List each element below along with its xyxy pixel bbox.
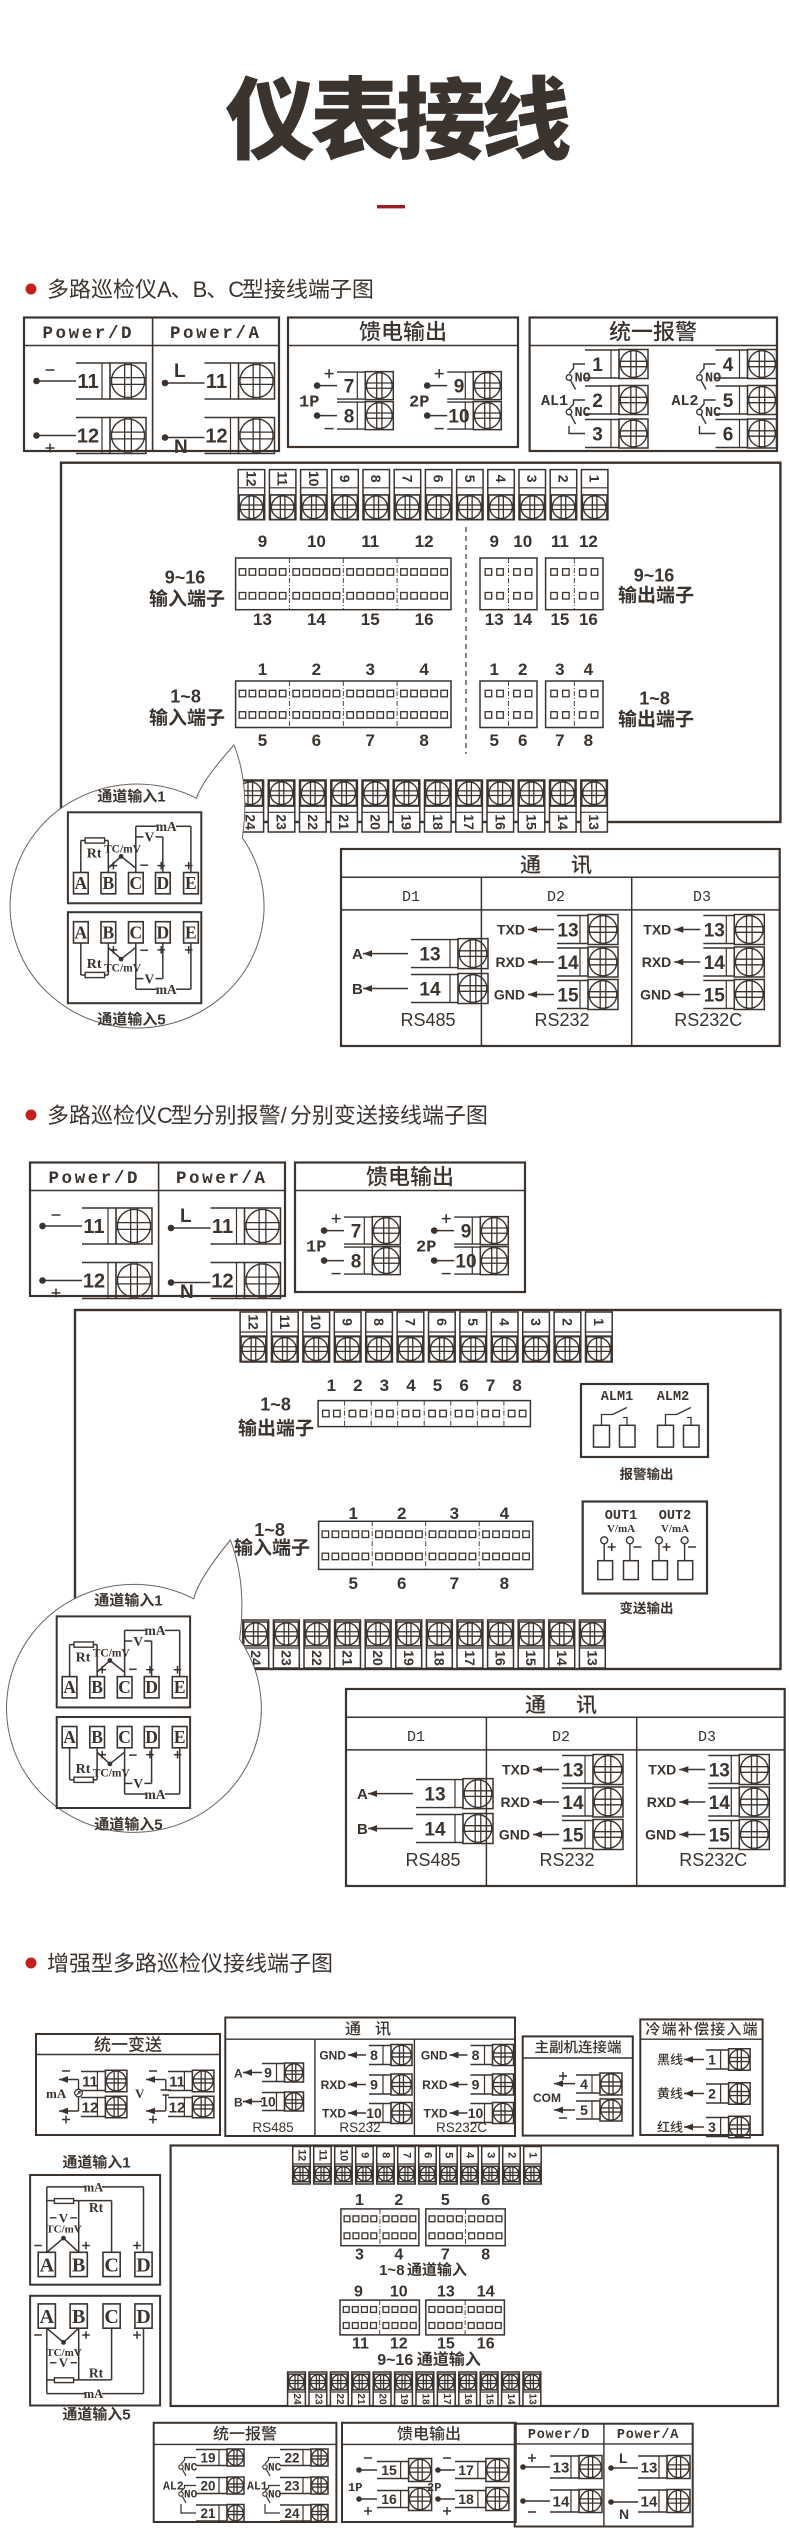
svg-text:12: 12 <box>390 2336 408 2353</box>
svg-text:15: 15 <box>704 985 726 1006</box>
svg-text:14: 14 <box>424 1819 446 1840</box>
svg-text:19: 19 <box>401 1650 417 1666</box>
svg-text:17: 17 <box>461 814 477 830</box>
svg-text:6: 6 <box>421 2152 433 2158</box>
svg-text:D: D <box>145 1727 158 1747</box>
svg-text:8: 8 <box>370 2047 378 2063</box>
svg-text:D1: D1 <box>407 1729 425 1746</box>
svg-text:15: 15 <box>709 1825 731 1846</box>
svg-text:RS232: RS232 <box>534 1010 589 1030</box>
svg-text:9: 9 <box>472 2077 480 2093</box>
svg-text:13: 13 <box>253 610 272 629</box>
svg-text:6: 6 <box>431 475 447 483</box>
svg-text:14: 14 <box>554 1650 570 1666</box>
svg-text:B: B <box>102 873 114 893</box>
svg-text:16: 16 <box>477 2336 495 2353</box>
svg-text:16: 16 <box>579 610 598 629</box>
svg-text:14: 14 <box>562 1793 584 1814</box>
svg-text:5: 5 <box>122 2406 130 2423</box>
svg-text:GND: GND <box>645 1827 676 1843</box>
svg-text:Rt: Rt <box>76 1762 91 1777</box>
svg-text:4: 4 <box>493 475 509 483</box>
svg-text:14: 14 <box>505 2393 516 2405</box>
svg-text:1: 1 <box>592 355 603 376</box>
svg-text:V: V <box>133 1634 143 1649</box>
svg-text:1~8: 1~8 <box>170 687 201 707</box>
svg-text:11: 11 <box>77 371 98 393</box>
svg-text:RXD: RXD <box>422 2078 448 2092</box>
svg-text:D3: D3 <box>693 889 711 906</box>
svg-text:GND: GND <box>494 987 525 1003</box>
svg-text:D: D <box>136 2306 150 2328</box>
svg-text:RS485: RS485 <box>252 2120 293 2135</box>
svg-text:E: E <box>174 1677 186 1697</box>
svg-text:10: 10 <box>366 2105 382 2121</box>
svg-text:1: 1 <box>122 2154 130 2171</box>
svg-text:22: 22 <box>305 814 321 830</box>
svg-text:10: 10 <box>390 2284 408 2301</box>
svg-text:15: 15 <box>562 1825 584 1846</box>
svg-text:12: 12 <box>83 1271 105 1293</box>
svg-text:1~8: 1~8 <box>379 2262 404 2279</box>
svg-text:RXD: RXD <box>321 2078 347 2092</box>
svg-text:10: 10 <box>468 2105 484 2121</box>
svg-text:3: 3 <box>365 660 374 679</box>
svg-text:8: 8 <box>481 2247 490 2264</box>
svg-text:TXD: TXD <box>648 1762 676 1778</box>
svg-text:13: 13 <box>709 1760 730 1781</box>
svg-text:A: A <box>234 2067 243 2081</box>
svg-text:1~8: 1~8 <box>260 1395 291 1415</box>
svg-text:mA: mA <box>84 2180 103 2194</box>
svg-text:ALM1: ALM1 <box>601 1390 633 1405</box>
svg-text:6: 6 <box>434 1318 450 1326</box>
svg-text:TC/mV: TC/mV <box>104 963 142 975</box>
svg-text:2: 2 <box>518 660 527 679</box>
svg-text:16: 16 <box>492 814 508 830</box>
svg-text:Power/A: Power/A <box>170 324 262 344</box>
svg-text:9: 9 <box>358 2152 370 2158</box>
svg-text:16: 16 <box>462 2393 473 2405</box>
svg-text:L: L <box>180 1206 192 1227</box>
svg-text:12: 12 <box>245 1314 261 1330</box>
svg-text:24: 24 <box>284 2506 300 2521</box>
svg-text:E: E <box>185 873 197 893</box>
svg-text:RXD: RXD <box>495 954 525 970</box>
svg-text:Power/A: Power/A <box>176 1169 268 1189</box>
svg-text:13: 13 <box>437 2284 455 2301</box>
svg-text:6: 6 <box>518 731 527 750</box>
svg-text:D2: D2 <box>552 1729 570 1746</box>
svg-text:23: 23 <box>312 2393 323 2405</box>
svg-text:A: A <box>357 1786 368 1803</box>
svg-text:Rt: Rt <box>76 1650 91 1665</box>
svg-text:B: B <box>357 1821 368 1838</box>
svg-text:RS232C: RS232C <box>679 1850 747 1870</box>
svg-text:1: 1 <box>154 1592 162 1609</box>
svg-text:N: N <box>619 2506 629 2522</box>
svg-text:9: 9 <box>354 2284 363 2301</box>
svg-text:V/mA: V/mA <box>661 1523 689 1535</box>
svg-text:E: E <box>185 922 197 942</box>
svg-text:3: 3 <box>555 660 564 679</box>
svg-text:13: 13 <box>485 610 504 629</box>
svg-text:4: 4 <box>580 2076 588 2092</box>
svg-text:9: 9 <box>264 2065 272 2081</box>
svg-text:5: 5 <box>258 731 267 750</box>
svg-text:6: 6 <box>312 731 321 750</box>
svg-text:TXD: TXD <box>502 1762 530 1778</box>
svg-text:V/mA: V/mA <box>607 1523 635 1535</box>
svg-text:20: 20 <box>377 2393 388 2405</box>
svg-text:4: 4 <box>584 660 594 679</box>
svg-text:C: C <box>228 277 244 302</box>
svg-text:11: 11 <box>352 2336 369 2353</box>
svg-text:5: 5 <box>157 1011 165 1028</box>
svg-text:1: 1 <box>348 1504 357 1523</box>
svg-text:5: 5 <box>442 2152 454 2158</box>
svg-text:12: 12 <box>169 2099 186 2116</box>
svg-text:11: 11 <box>277 1315 293 1330</box>
svg-text:15: 15 <box>550 610 569 629</box>
svg-text:2: 2 <box>505 2152 517 2158</box>
svg-text:15: 15 <box>437 2336 455 2353</box>
svg-text:13: 13 <box>704 920 725 941</box>
svg-text:A: A <box>157 277 172 302</box>
svg-text:8: 8 <box>500 1574 509 1593</box>
svg-text:5: 5 <box>723 391 734 412</box>
svg-text:6: 6 <box>397 1574 406 1593</box>
svg-text:3: 3 <box>592 424 603 445</box>
svg-text:OUT2: OUT2 <box>659 1509 691 1524</box>
svg-text:2P: 2P <box>427 2481 441 2495</box>
svg-text:NC: NC <box>268 2463 282 2475</box>
svg-text:C: C <box>104 2254 118 2276</box>
svg-text:23: 23 <box>274 814 290 830</box>
svg-text:8: 8 <box>379 2152 391 2158</box>
svg-text:2: 2 <box>397 1504 406 1523</box>
svg-text:V: V <box>135 2086 145 2101</box>
svg-text:RS232: RS232 <box>339 2120 380 2135</box>
svg-text:7: 7 <box>365 731 374 750</box>
svg-text:5: 5 <box>462 475 478 483</box>
svg-text:ALM2: ALM2 <box>657 1390 689 1405</box>
svg-text:7: 7 <box>344 376 355 397</box>
svg-text:RS232C: RS232C <box>674 1010 742 1030</box>
svg-text:A: A <box>63 1677 76 1697</box>
svg-text:13: 13 <box>557 920 578 941</box>
svg-text:1: 1 <box>587 475 603 483</box>
svg-text:NO: NO <box>268 2490 282 2502</box>
svg-text:2: 2 <box>353 1376 362 1395</box>
svg-text:17: 17 <box>458 2462 474 2478</box>
svg-text:11: 11 <box>83 1216 104 1238</box>
svg-text:21: 21 <box>355 2393 366 2405</box>
svg-text:11: 11 <box>275 471 291 486</box>
svg-text:11: 11 <box>361 532 379 551</box>
svg-text:12: 12 <box>579 532 598 551</box>
svg-text:14: 14 <box>555 814 571 830</box>
svg-text:RXD: RXD <box>500 1794 530 1810</box>
svg-text:TC/mV: TC/mV <box>93 1767 131 1779</box>
svg-text:D: D <box>136 2254 150 2276</box>
svg-text:TC/mV: TC/mV <box>93 1648 131 1660</box>
svg-text:9: 9 <box>258 532 267 551</box>
svg-text:mA: mA <box>156 819 177 834</box>
svg-text:20: 20 <box>370 1650 386 1666</box>
svg-text:14: 14 <box>641 2493 658 2510</box>
svg-text:5: 5 <box>348 1574 357 1593</box>
svg-text:23: 23 <box>278 1650 294 1666</box>
svg-text:7: 7 <box>555 731 564 750</box>
svg-text:C: C <box>129 922 142 942</box>
svg-text:GND: GND <box>319 2049 346 2063</box>
svg-text:10: 10 <box>455 1251 476 1272</box>
svg-text:B: B <box>91 1677 103 1697</box>
svg-text:mA: mA <box>145 1787 166 1802</box>
svg-text:22: 22 <box>284 2450 299 2465</box>
svg-text:mA: mA <box>156 982 177 997</box>
svg-text:1: 1 <box>489 660 498 679</box>
svg-text:D: D <box>156 873 169 893</box>
svg-text:OUT1: OUT1 <box>605 1509 637 1524</box>
svg-text:mA: mA <box>84 2387 103 2401</box>
svg-text:1: 1 <box>355 2192 364 2209</box>
svg-text:mA: mA <box>46 2086 67 2101</box>
svg-text:10: 10 <box>337 2149 349 2161</box>
svg-text:1: 1 <box>708 2052 716 2068</box>
svg-text:3: 3 <box>524 475 540 483</box>
svg-text:1: 1 <box>327 1376 336 1395</box>
svg-text:16: 16 <box>381 2491 397 2507</box>
svg-text:9: 9 <box>370 2077 378 2093</box>
svg-text:C: C <box>104 2306 118 2328</box>
svg-text:4: 4 <box>500 1504 510 1523</box>
svg-text:9: 9 <box>454 376 465 397</box>
svg-text:8: 8 <box>344 406 355 427</box>
svg-text:4: 4 <box>497 1318 513 1326</box>
svg-text:10: 10 <box>448 406 469 427</box>
svg-text:2: 2 <box>560 1318 576 1326</box>
svg-text:19: 19 <box>398 2393 409 2405</box>
svg-text:NO: NO <box>705 372 721 387</box>
svg-text:B: B <box>102 922 114 942</box>
svg-text:GND: GND <box>421 2049 448 2063</box>
svg-text:7: 7 <box>403 1318 419 1326</box>
svg-text:Power/D: Power/D <box>528 2428 590 2443</box>
svg-text:1: 1 <box>591 1318 607 1326</box>
svg-text:GND: GND <box>640 987 671 1003</box>
svg-text:1P: 1P <box>348 2481 362 2495</box>
svg-text:Power/D: Power/D <box>48 1169 140 1189</box>
svg-text:RS232: RS232 <box>539 1850 594 1870</box>
svg-text:20: 20 <box>200 2478 215 2493</box>
svg-text:17: 17 <box>441 2393 452 2405</box>
svg-text:A: A <box>63 1727 76 1747</box>
svg-text:GND: GND <box>499 1827 530 1843</box>
svg-text:21: 21 <box>336 814 352 830</box>
svg-text:AL1: AL1 <box>541 393 568 410</box>
svg-text:2: 2 <box>708 2086 716 2102</box>
svg-text:B: B <box>193 277 208 302</box>
svg-text:RS232C: RS232C <box>436 2120 487 2135</box>
svg-text:4: 4 <box>463 2152 475 2159</box>
svg-text:13: 13 <box>586 814 602 830</box>
svg-text:15: 15 <box>381 2462 397 2478</box>
svg-text:7: 7 <box>400 2152 412 2158</box>
svg-text:9: 9 <box>489 532 498 551</box>
svg-text:1: 1 <box>157 788 165 805</box>
svg-text:13: 13 <box>584 1650 600 1666</box>
svg-text:8: 8 <box>419 731 428 750</box>
svg-text:Rt: Rt <box>87 957 102 972</box>
svg-text:A: A <box>40 2306 55 2328</box>
svg-text:C: C <box>118 1727 131 1747</box>
svg-text:5: 5 <box>433 1376 442 1395</box>
svg-text:TC/mV: TC/mV <box>104 843 142 855</box>
svg-text:12: 12 <box>205 426 227 448</box>
svg-text:D2: D2 <box>547 889 565 906</box>
svg-text:1P: 1P <box>299 394 319 413</box>
svg-text:2: 2 <box>394 2192 403 2209</box>
svg-text:12: 12 <box>211 1271 233 1293</box>
svg-text:10: 10 <box>306 471 322 487</box>
svg-text:2P: 2P <box>409 394 429 413</box>
svg-text:14: 14 <box>307 610 326 629</box>
svg-text:NC: NC <box>575 406 591 421</box>
svg-text:16: 16 <box>493 1650 509 1666</box>
svg-text:NC: NC <box>184 2463 198 2475</box>
svg-text:9: 9 <box>337 475 353 483</box>
svg-text:1~8: 1~8 <box>254 1520 285 1540</box>
svg-text:Power/D: Power/D <box>42 324 134 344</box>
svg-text:1: 1 <box>258 660 267 679</box>
svg-text:Power/A: Power/A <box>617 2428 679 2443</box>
svg-text:13: 13 <box>641 2459 658 2476</box>
svg-text:NO: NO <box>184 2490 198 2502</box>
svg-text:N: N <box>174 437 188 458</box>
svg-text:2P: 2P <box>416 1239 436 1258</box>
svg-text:4: 4 <box>723 355 734 376</box>
svg-text:6: 6 <box>459 1376 468 1395</box>
svg-text:15: 15 <box>361 610 380 629</box>
svg-text:D: D <box>156 922 169 942</box>
svg-text:3: 3 <box>708 2119 716 2135</box>
svg-text:15: 15 <box>484 2393 495 2405</box>
svg-text:8: 8 <box>368 475 384 483</box>
svg-text:12: 12 <box>243 471 259 487</box>
svg-text:8: 8 <box>351 1251 362 1272</box>
svg-text:4: 4 <box>419 660 429 679</box>
svg-text:4: 4 <box>406 1376 416 1395</box>
svg-text:7: 7 <box>351 1221 362 1242</box>
svg-text:10: 10 <box>513 532 532 551</box>
svg-text:11: 11 <box>82 2073 98 2090</box>
svg-text:7: 7 <box>441 2247 450 2264</box>
svg-text:D: D <box>145 1677 158 1697</box>
svg-text:COM: COM <box>533 2091 561 2105</box>
svg-text:19: 19 <box>200 2450 215 2465</box>
svg-text:A: A <box>74 873 87 893</box>
svg-text:3: 3 <box>528 1318 544 1326</box>
svg-text:8: 8 <box>512 1376 521 1395</box>
svg-text:AL2: AL2 <box>672 393 699 410</box>
svg-text:8: 8 <box>584 731 593 750</box>
svg-text:N: N <box>180 1282 194 1303</box>
svg-text:17: 17 <box>462 1650 478 1666</box>
svg-text:NC: NC <box>705 406 721 421</box>
svg-text:21: 21 <box>340 1650 356 1666</box>
svg-text:RXD: RXD <box>642 954 672 970</box>
svg-text:E: E <box>174 1727 186 1747</box>
svg-text:TXD: TXD <box>643 922 671 938</box>
svg-text:14: 14 <box>557 953 579 974</box>
svg-text:8: 8 <box>371 1318 387 1326</box>
svg-text:19: 19 <box>399 814 415 830</box>
svg-text:D3: D3 <box>698 1729 716 1746</box>
svg-text:22: 22 <box>309 1650 325 1666</box>
svg-text:14: 14 <box>709 1793 731 1814</box>
svg-text:14: 14 <box>704 953 726 974</box>
svg-text:9~16: 9~16 <box>377 2352 413 2369</box>
svg-text:Rt: Rt <box>87 846 102 861</box>
svg-text:9: 9 <box>461 1221 472 1242</box>
svg-text:6: 6 <box>481 2192 490 2209</box>
svg-text:7: 7 <box>450 1574 459 1593</box>
svg-text:13: 13 <box>553 2459 570 2476</box>
svg-text:15: 15 <box>557 985 579 1006</box>
svg-text:20: 20 <box>367 814 383 830</box>
svg-text:A: A <box>74 922 87 942</box>
svg-text:21: 21 <box>200 2506 216 2521</box>
svg-text:1P: 1P <box>306 1239 326 1258</box>
svg-text:5: 5 <box>465 1318 481 1326</box>
svg-text:RS485: RS485 <box>405 1850 460 1870</box>
svg-text:12: 12 <box>415 532 434 551</box>
svg-text:1~8: 1~8 <box>639 689 670 709</box>
svg-text:B: B <box>352 981 363 998</box>
svg-text:V: V <box>145 971 155 986</box>
svg-text:A: A <box>352 946 363 963</box>
svg-text:14: 14 <box>513 610 532 629</box>
svg-text:RS485: RS485 <box>400 1010 455 1030</box>
svg-text:B: B <box>234 2096 243 2110</box>
svg-text:12: 12 <box>82 2099 99 2116</box>
svg-text:14: 14 <box>553 2493 570 2510</box>
svg-text:13: 13 <box>419 944 440 965</box>
svg-text:3: 3 <box>484 2152 496 2158</box>
svg-text:2: 2 <box>312 660 321 679</box>
svg-text:TXD: TXD <box>497 922 525 938</box>
svg-text:11: 11 <box>316 2149 328 2161</box>
svg-text:7: 7 <box>486 1376 495 1395</box>
svg-text:8: 8 <box>472 2047 480 2063</box>
svg-text:B: B <box>72 2306 85 2328</box>
svg-text:V: V <box>133 1776 143 1791</box>
svg-text:9~16: 9~16 <box>165 568 206 588</box>
svg-text:TXD: TXD <box>322 2107 346 2121</box>
svg-text:1: 1 <box>527 2152 539 2158</box>
svg-text:18: 18 <box>431 1650 447 1666</box>
svg-text:C: C <box>157 1103 173 1128</box>
svg-text:5: 5 <box>154 1816 162 1833</box>
svg-text:15: 15 <box>524 814 540 830</box>
svg-text:L: L <box>174 361 186 382</box>
svg-text:RXD: RXD <box>647 1794 677 1810</box>
svg-text:2: 2 <box>592 391 603 412</box>
svg-text:22: 22 <box>334 2393 345 2405</box>
svg-text:B: B <box>91 1727 103 1747</box>
